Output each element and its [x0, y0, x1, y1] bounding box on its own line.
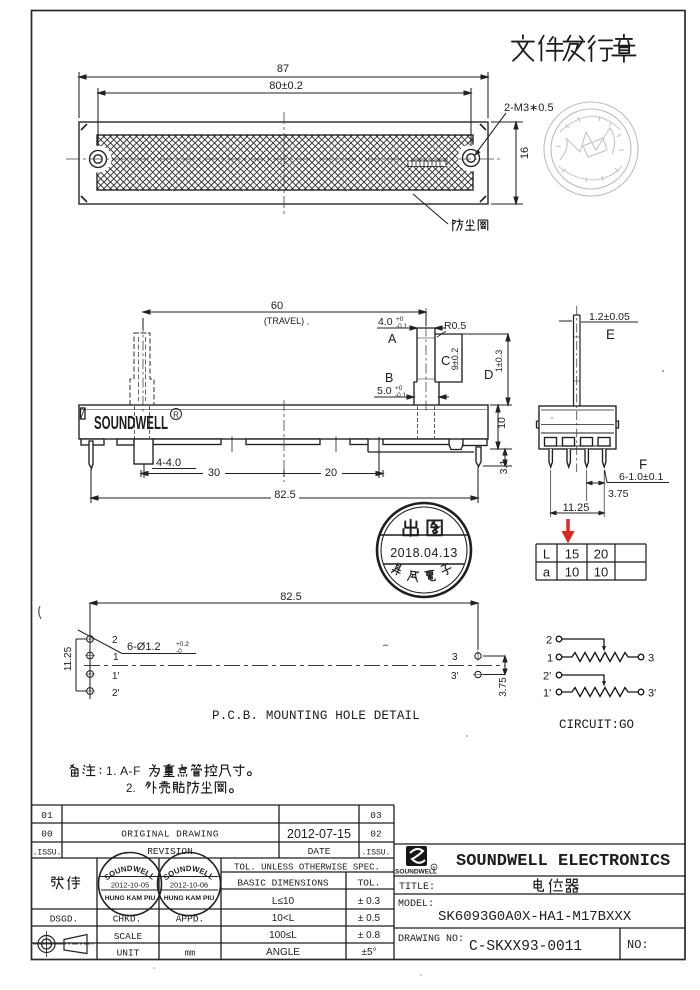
svg-text:2012-10-05: 2012-10-05 [111, 881, 149, 890]
svg-text:APPD.: APPD. [176, 914, 205, 925]
svg-text:2': 2' [112, 688, 120, 699]
svg-text:±5°: ±5° [361, 947, 376, 958]
svg-text:00: 00 [41, 829, 53, 840]
svg-text:11.25: 11.25 [63, 646, 74, 671]
svg-text:01: 01 [41, 810, 53, 821]
svg-text:SK6093G0A0X-HA1-M17BXXX: SK6093G0A0X-HA1-M17BXXX [438, 909, 632, 925]
svg-text:1': 1' [543, 688, 551, 700]
svg-text:± 0.5: ± 0.5 [358, 913, 381, 924]
svg-text:82.5: 82.5 [280, 591, 301, 603]
svg-text:6-Ø1.2: 6-Ø1.2 [127, 641, 161, 653]
svg-text:± 0.3: ± 0.3 [358, 896, 381, 907]
svg-text:.ISSU.: .ISSU. [33, 849, 62, 858]
svg-text:+0: +0 [395, 385, 403, 392]
svg-text:.ISSU.: .ISSU. [362, 849, 391, 858]
svg-text:MODEL:: MODEL: [398, 899, 434, 910]
svg-text:B: B [385, 371, 393, 385]
svg-text:± 0.8: ± 0.8 [358, 930, 381, 941]
svg-text:D: D [484, 367, 493, 382]
svg-text:+0: +0 [396, 316, 404, 323]
svg-text:4.0: 4.0 [378, 316, 393, 328]
svg-text:15: 15 [565, 547, 579, 562]
svg-text:P.C.B. MOUNTING HOLE DETAIL: P.C.B. MOUNTING HOLE DETAIL [212, 709, 420, 723]
svg-text:03: 03 [370, 810, 382, 821]
svg-text:3.75: 3.75 [608, 488, 629, 500]
svg-text:TITLE:: TITLE: [399, 882, 435, 893]
svg-text:2018.04.13: 2018.04.13 [390, 546, 458, 560]
svg-text:2-M3∗0.5: 2-M3∗0.5 [504, 102, 554, 114]
svg-text:9±0.2: 9±0.2 [450, 348, 460, 370]
svg-text:20: 20 [594, 547, 608, 562]
svg-text:SOUNDWELL ELECTRONICS: SOUNDWELL ELECTRONICS [456, 852, 670, 871]
svg-text:2: 2 [112, 635, 118, 646]
svg-text:10: 10 [496, 417, 508, 429]
svg-text:TOL. UNLESS OTHERWISE SPEC.: TOL. UNLESS OTHERWISE SPEC. [234, 863, 380, 873]
svg-text:ANGLE: ANGLE [266, 947, 300, 958]
svg-text:TOL.: TOL. [358, 878, 381, 889]
svg-text:C: C [441, 353, 450, 368]
svg-text:02: 02 [370, 829, 382, 840]
svg-text:SCALE: SCALE [114, 931, 143, 942]
svg-text:REVISION: REVISION [147, 846, 193, 857]
svg-text:SOUNDWELL: SOUNDWELL [94, 413, 168, 433]
svg-text:2012-07-15: 2012-07-15 [287, 827, 351, 841]
svg-text:10<L: 10<L [272, 913, 295, 924]
svg-text:E: E [606, 327, 615, 342]
svg-text:100≤L: 100≤L [269, 930, 297, 941]
svg-text:BASIC DIMENSIONS: BASIC DIMENSIONS [237, 878, 329, 889]
svg-text:1: 1 [113, 652, 119, 663]
svg-text:5.0: 5.0 [377, 385, 392, 397]
svg-text:DRAWING NO:: DRAWING NO: [398, 934, 464, 945]
svg-text:F: F [639, 457, 647, 472]
svg-text:80±0.2: 80±0.2 [269, 80, 303, 92]
svg-text:-0.1: -0.1 [395, 392, 407, 399]
svg-text:11.25: 11.25 [563, 502, 590, 514]
svg-text:SOUNDWELL: SOUNDWELL [395, 869, 437, 876]
svg-text:UNIT: UNIT [117, 948, 140, 959]
svg-text:L≤10: L≤10 [272, 896, 295, 907]
svg-text:DSGD.: DSGD. [50, 914, 79, 925]
svg-text:2.: 2. [126, 783, 136, 795]
svg-text:1.2±0.05: 1.2±0.05 [589, 311, 630, 323]
svg-text:87: 87 [277, 63, 289, 75]
svg-text:82.5: 82.5 [274, 489, 295, 501]
svg-text:L: L [543, 547, 550, 562]
svg-text:mm: mm [185, 949, 196, 959]
svg-text:2: 2 [546, 635, 552, 647]
svg-text:2012-10-06: 2012-10-06 [170, 881, 208, 890]
svg-text:R: R [173, 411, 179, 420]
svg-text:+0.2: +0.2 [176, 641, 189, 648]
svg-text:R0.5: R0.5 [444, 320, 466, 332]
svg-text:ORIGINAL DRAWING: ORIGINAL DRAWING [121, 829, 219, 840]
svg-text:30: 30 [208, 467, 220, 479]
svg-text:CHKD.: CHKD. [113, 914, 142, 925]
svg-text:1±0.3: 1±0.3 [494, 350, 504, 372]
svg-text:1. A-F: 1. A-F [106, 764, 141, 778]
svg-text:CIRCUIT:GO: CIRCUIT:GO [559, 718, 634, 732]
svg-text:20: 20 [325, 467, 337, 479]
svg-text:3: 3 [452, 652, 458, 663]
svg-text:SOUNDWELL: SOUNDWELL [103, 864, 157, 882]
svg-text:16: 16 [519, 147, 531, 159]
svg-text:HUNG KAM PIU: HUNG KAM PIU [105, 895, 156, 902]
svg-text:a: a [543, 565, 551, 580]
svg-text:NO:: NO: [627, 938, 649, 952]
svg-text:3.1: 3.1 [498, 460, 510, 475]
svg-text:-0.1: -0.1 [396, 323, 408, 330]
svg-text:3': 3' [648, 688, 656, 700]
svg-text:A: A [388, 332, 397, 346]
svg-text:10: 10 [565, 565, 579, 580]
svg-text:3: 3 [648, 653, 654, 665]
svg-text:10: 10 [594, 565, 608, 580]
svg-text:60: 60 [271, 300, 283, 312]
svg-text:1: 1 [547, 653, 553, 665]
svg-text:C-SKXX93-0011: C-SKXX93-0011 [469, 939, 582, 955]
svg-text:6-1.0±0.1: 6-1.0±0.1 [619, 471, 663, 483]
svg-text:2': 2' [543, 671, 551, 683]
svg-text:(TRAVEL): (TRAVEL) [264, 316, 304, 326]
svg-text:HUNG KAM PIU: HUNG KAM PIU [164, 895, 215, 902]
svg-text:1': 1' [112, 671, 120, 682]
svg-text:SOUNDWELL: SOUNDWELL [162, 864, 216, 882]
svg-text:4-4.0: 4-4.0 [156, 457, 181, 469]
svg-text:3': 3' [451, 671, 459, 682]
svg-text:3.75: 3.75 [498, 677, 509, 697]
svg-text:DATE: DATE [308, 846, 331, 857]
